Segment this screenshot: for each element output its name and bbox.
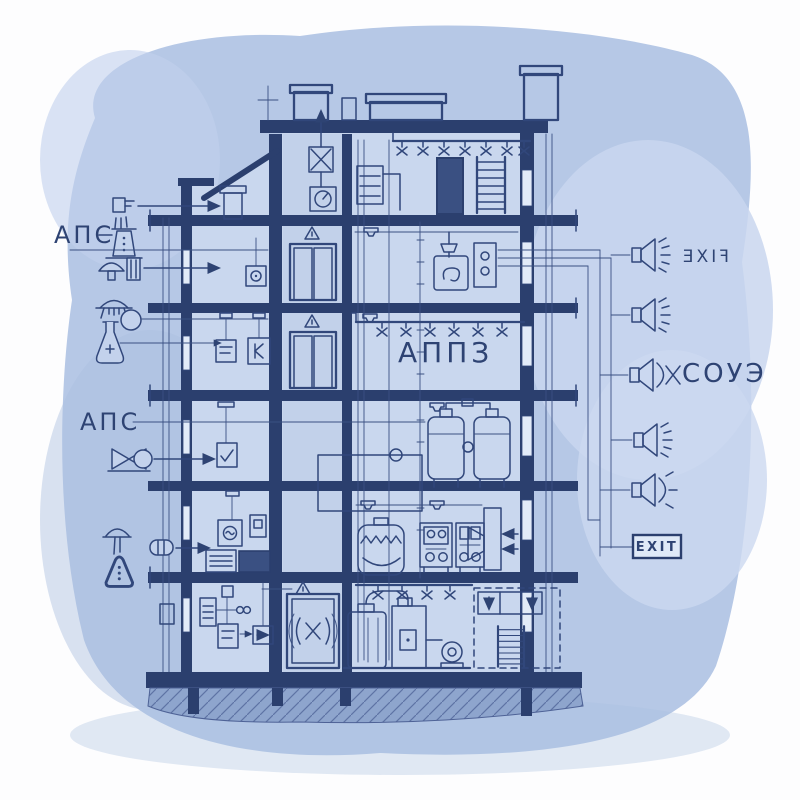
exit-text: EXIT (636, 540, 679, 555)
appz-label: АППЗ (398, 336, 493, 369)
soue-label: СОУЭ (682, 359, 767, 389)
exit-badge: EXIT (633, 535, 681, 558)
blueprint-canvas: АППЗ (0, 0, 800, 800)
mirrored-exit-label: FIXE (680, 247, 729, 267)
svg-text:FIXE: FIXE (680, 247, 729, 267)
door-top-floor (437, 158, 463, 214)
aps-label-mid: АПС (80, 408, 140, 436)
blueprint-drawing: АППЗ (0, 0, 800, 800)
hand-barrel-icon (150, 540, 173, 555)
